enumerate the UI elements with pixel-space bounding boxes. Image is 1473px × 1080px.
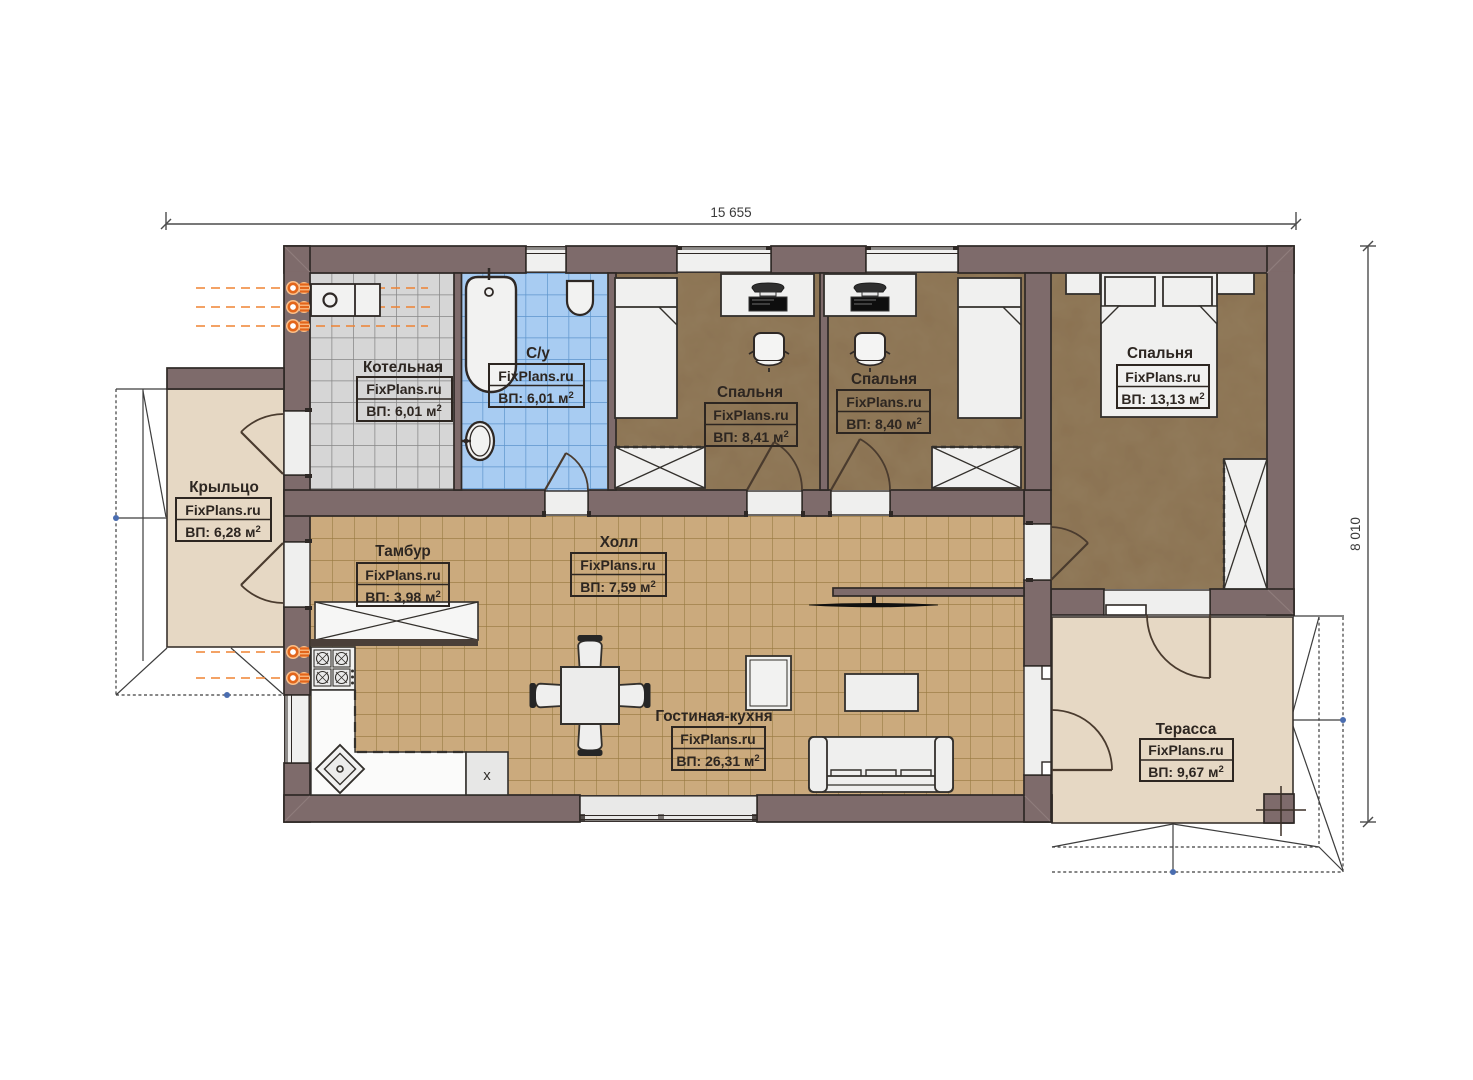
svg-text:FixPlans.ru: FixPlans.ru: [185, 502, 260, 518]
svg-text:FixPlans.ru: FixPlans.ru: [846, 394, 921, 410]
svg-text:Спальня: Спальня: [717, 384, 783, 401]
svg-text:FixPlans.ru: FixPlans.ru: [366, 381, 441, 397]
svg-text:ВП: 8,40 м2: ВП: 8,40 м2: [846, 416, 922, 432]
svg-text:FixPlans.ru: FixPlans.ru: [498, 368, 573, 384]
svg-text:ВП: 9,67 м2: ВП: 9,67 м2: [1148, 764, 1224, 780]
svg-text:FixPlans.ru: FixPlans.ru: [680, 731, 755, 747]
svg-text:ВП: 6,28 м2: ВП: 6,28 м2: [185, 524, 261, 540]
svg-text:ВП: 13,13 м2: ВП: 13,13 м2: [1121, 391, 1204, 407]
svg-text:ВП: 26,31 м2: ВП: 26,31 м2: [676, 753, 759, 769]
svg-text:FixPlans.ru: FixPlans.ru: [1125, 369, 1200, 385]
svg-text:Спальня: Спальня: [851, 371, 917, 388]
svg-text:Терасса: Терасса: [1156, 721, 1217, 738]
svg-text:FixPlans.ru: FixPlans.ru: [1148, 742, 1223, 758]
svg-text:Спальня: Спальня: [1127, 345, 1193, 362]
svg-text:FixPlans.ru: FixPlans.ru: [580, 557, 655, 573]
svg-text:8 010: 8 010: [1348, 517, 1363, 551]
svg-text:Холл: Холл: [600, 534, 638, 551]
svg-text:ВП: 3,98 м2: ВП: 3,98 м2: [365, 589, 441, 605]
svg-text:ВП: 6,01 м2: ВП: 6,01 м2: [498, 390, 574, 406]
svg-text:FixPlans.ru: FixPlans.ru: [713, 407, 788, 423]
svg-text:Гостиная-кухня: Гостиная-кухня: [655, 708, 772, 725]
svg-text:FixPlans.ru: FixPlans.ru: [365, 567, 440, 583]
svg-text:Котельная: Котельная: [363, 359, 443, 376]
svg-text:Тамбур: Тамбур: [375, 543, 430, 560]
svg-text:ВП: 7,59 м2: ВП: 7,59 м2: [580, 579, 656, 595]
svg-text:С/у: С/у: [526, 345, 550, 362]
svg-text:Крыльцо: Крыльцо: [189, 479, 259, 496]
svg-text:x: x: [483, 767, 491, 784]
svg-text:ВП: 8,41 м2: ВП: 8,41 м2: [713, 429, 789, 445]
svg-text:15 655: 15 655: [710, 205, 751, 220]
svg-text:ВП: 6,01 м2: ВП: 6,01 м2: [366, 403, 442, 419]
